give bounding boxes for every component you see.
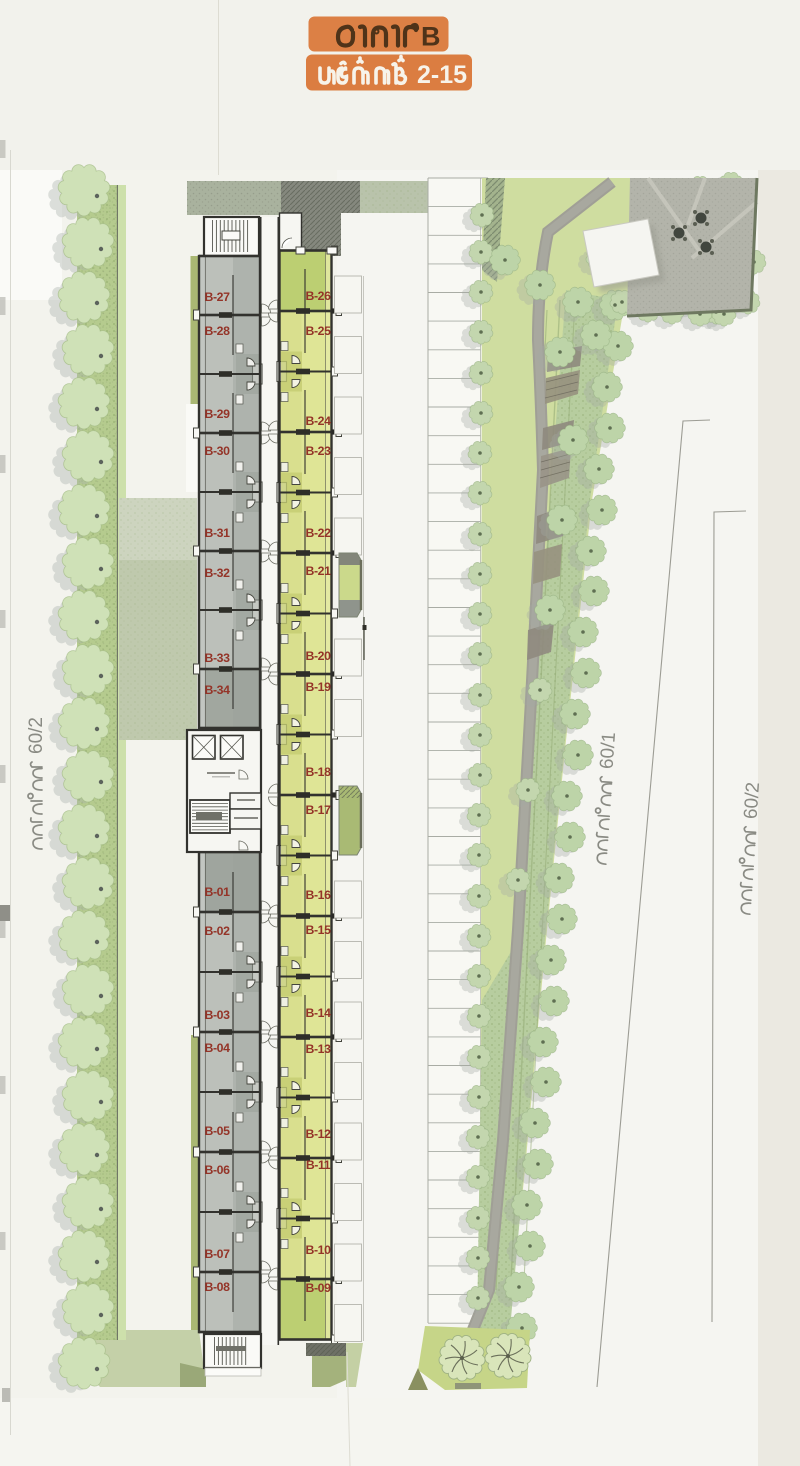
svg-text:B-09: B-09 — [305, 1281, 331, 1295]
svg-text:B-04: B-04 — [204, 1041, 230, 1055]
svg-text:B-18: B-18 — [305, 765, 331, 779]
svg-text:B-24: B-24 — [305, 414, 331, 428]
svg-text:B-26: B-26 — [305, 289, 331, 303]
svg-text:60/2: 60/2 — [741, 781, 765, 819]
svg-text:B-19: B-19 — [305, 680, 331, 694]
svg-text:B-28: B-28 — [204, 324, 230, 338]
svg-text:B-12: B-12 — [305, 1127, 331, 1141]
svg-text:B-22: B-22 — [305, 526, 331, 540]
svg-text:B-03: B-03 — [204, 1008, 230, 1022]
svg-text:B-25: B-25 — [305, 324, 331, 338]
svg-text:B: B — [421, 22, 441, 52]
svg-text:B-07: B-07 — [204, 1247, 230, 1261]
svg-text:B-10: B-10 — [305, 1243, 331, 1257]
svg-text:B-29: B-29 — [204, 407, 230, 421]
svg-text:B-33: B-33 — [204, 651, 230, 665]
svg-text:B-30: B-30 — [204, 444, 230, 458]
svg-text:B-16: B-16 — [305, 888, 331, 902]
svg-text:B-32: B-32 — [204, 566, 230, 580]
svg-text:B-06: B-06 — [204, 1163, 230, 1177]
svg-text:B-08: B-08 — [204, 1280, 230, 1294]
svg-text:B-01: B-01 — [204, 885, 230, 899]
svg-text:60/1: 60/1 — [597, 731, 621, 769]
svg-text:60/2: 60/2 — [26, 717, 47, 754]
svg-text:B-23: B-23 — [305, 444, 331, 458]
svg-text:B-05: B-05 — [204, 1124, 230, 1138]
svg-text:B-27: B-27 — [204, 290, 230, 304]
svg-text:2-15: 2-15 — [417, 61, 467, 89]
svg-text:B-31: B-31 — [204, 526, 230, 540]
svg-text:B-13: B-13 — [305, 1042, 331, 1056]
svg-text:B-11: B-11 — [306, 1158, 331, 1172]
svg-text:B-14: B-14 — [305, 1006, 331, 1020]
svg-text:B-02: B-02 — [204, 924, 230, 938]
svg-text:B-20: B-20 — [305, 649, 331, 663]
svg-text:B-15: B-15 — [305, 923, 331, 937]
svg-text:B-34: B-34 — [204, 683, 230, 697]
svg-text:B-17: B-17 — [305, 803, 331, 817]
svg-text:B-21: B-21 — [305, 564, 331, 578]
